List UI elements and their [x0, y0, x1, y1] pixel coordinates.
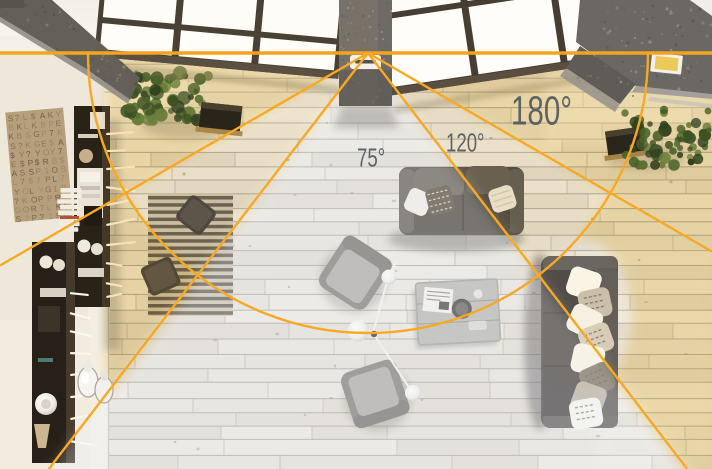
svg-text:120°: 120°	[446, 129, 484, 158]
svg-text:180°: 180°	[511, 88, 572, 134]
svg-text:75°: 75°	[357, 142, 385, 172]
